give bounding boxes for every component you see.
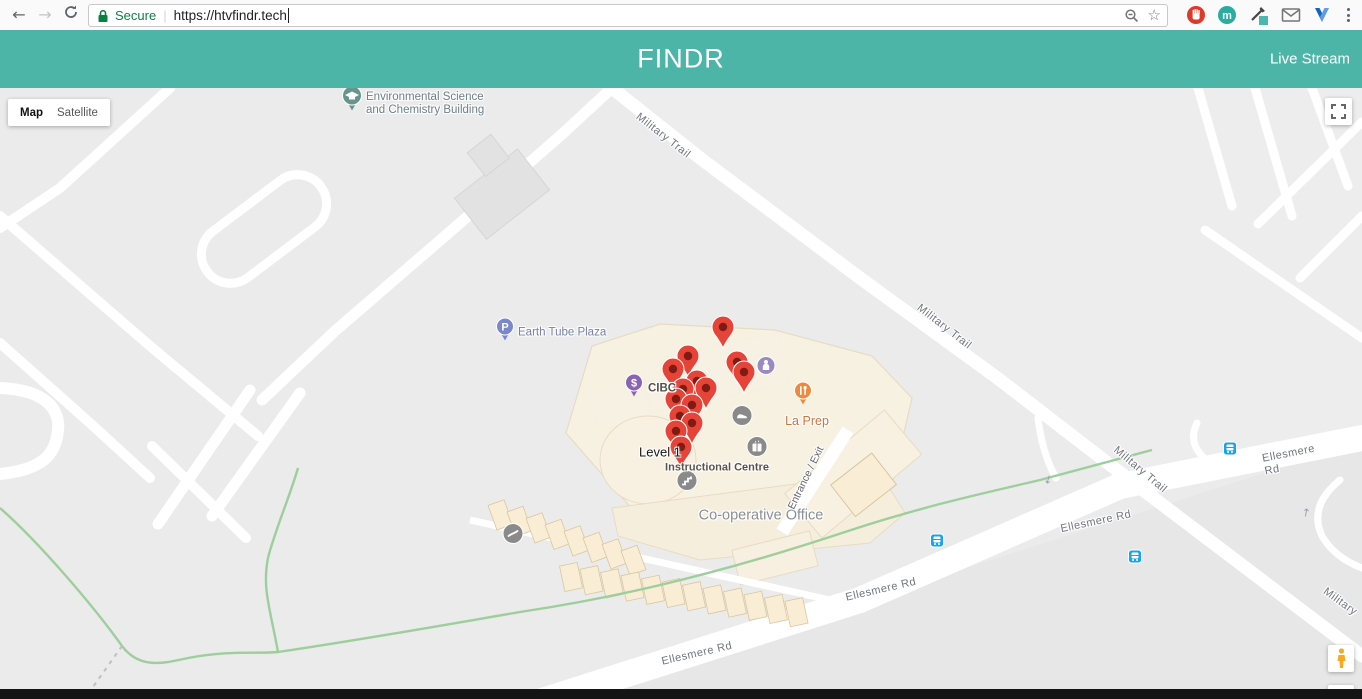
poi-label-la-prep[interactable]: La Prep [785,414,829,428]
poi-label-earth-tube-plaza[interactable]: Earth Tube Plaza [518,326,606,339]
transit-stop-icon[interactable] [1223,442,1237,461]
poi-label-cibc[interactable]: CIBC [648,382,676,395]
url-bar[interactable]: Secure | https://htvfindr.tech ☆ [88,4,1168,27]
bottom-attribution-strip [0,689,1362,699]
school-poi-icon[interactable] [341,88,363,119]
transit-stop-icon[interactable] [1128,550,1142,569]
restaurant-poi-icon[interactable] [793,382,813,413]
adblock-hand-icon[interactable] [1186,5,1206,25]
reload-icon[interactable] [58,0,84,30]
back-icon[interactable]: ← [6,0,32,30]
browser-window: ← → Secure | https://htvfindr.tech ☆ [0,0,1362,699]
live-stream-link[interactable]: Live Stream [1270,51,1350,68]
url-text[interactable]: https://htvfindr.tech [174,8,287,23]
map-type-control[interactable]: Map Satellite [8,99,110,126]
parking-poi-icon[interactable]: P [495,318,515,349]
map-type-satellite-button[interactable]: Satellite [53,107,110,119]
mail-extension-icon[interactable] [1281,7,1301,23]
zoom-out-icon[interactable] [1124,8,1140,24]
bookmark-star-icon[interactable]: ☆ [1148,8,1161,23]
map-base-layer [0,88,1362,699]
map-label-instructional-centre: Instructional Centre [665,462,769,475]
person-poi-icon[interactable] [756,356,776,381]
svg-text:m: m [1222,10,1232,22]
text-caret [288,8,289,23]
browser-menu-icon[interactable] [1343,8,1354,22]
shoe-store-icon[interactable] [732,405,753,431]
google-map[interactable]: P $ [0,88,1362,699]
v-extension-icon[interactable] [1312,5,1332,25]
walkway-icon[interactable] [503,523,524,549]
svg-text:P: P [501,322,508,334]
cibc-poi-icon[interactable]: $ [624,374,644,405]
pegman-button[interactable] [1328,645,1354,672]
pegman-icon [1335,648,1348,669]
fullscreen-icon [1331,104,1346,119]
browser-toolbar: ← → Secure | https://htvfindr.tech ☆ [0,0,1362,30]
elevator-icon[interactable] [747,436,768,462]
transit-stop-icon[interactable] [930,534,944,553]
omnibox-separator: | [163,8,166,23]
fullscreen-button[interactable] [1325,98,1352,125]
map-label-co-operative-office: Co-operative Office [699,508,824,525]
map-label-level-1: Level 1 [639,446,681,461]
lock-icon [97,9,109,23]
forward-icon: → [32,0,58,30]
m-extension-icon[interactable]: m [1217,5,1237,25]
poi-label-env-science-building[interactable]: Environmental Science and Chemistry Buil… [366,91,484,117]
map-type-map-button[interactable]: Map [8,107,53,119]
secure-label: Secure [115,8,156,23]
site-header: FINDR Live Stream [0,30,1362,88]
page-title: FINDR [637,44,725,75]
svg-text:$: $ [631,378,637,390]
color-picker-icon[interactable] [1248,4,1270,26]
